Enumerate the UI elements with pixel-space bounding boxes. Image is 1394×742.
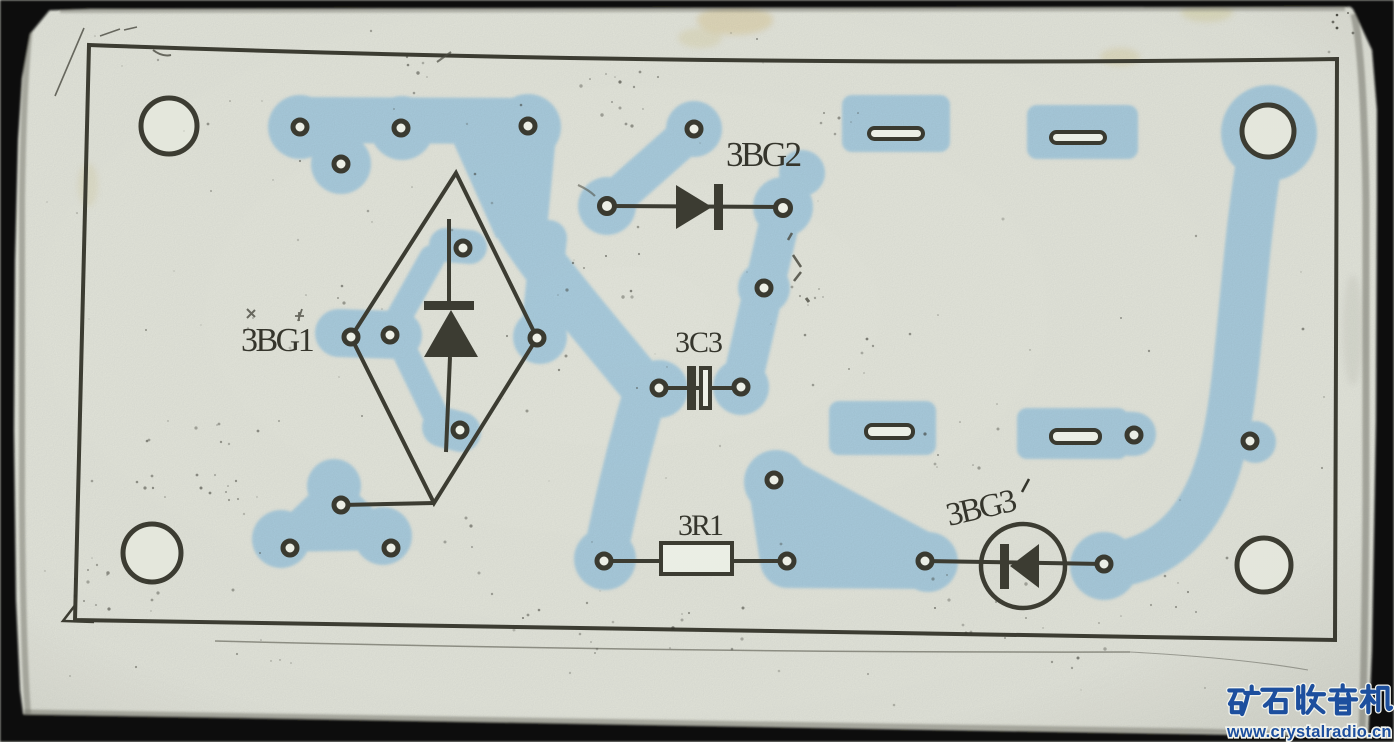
svg-text:www.crystalradio.cn: www.crystalradio.cn (1226, 723, 1391, 741)
